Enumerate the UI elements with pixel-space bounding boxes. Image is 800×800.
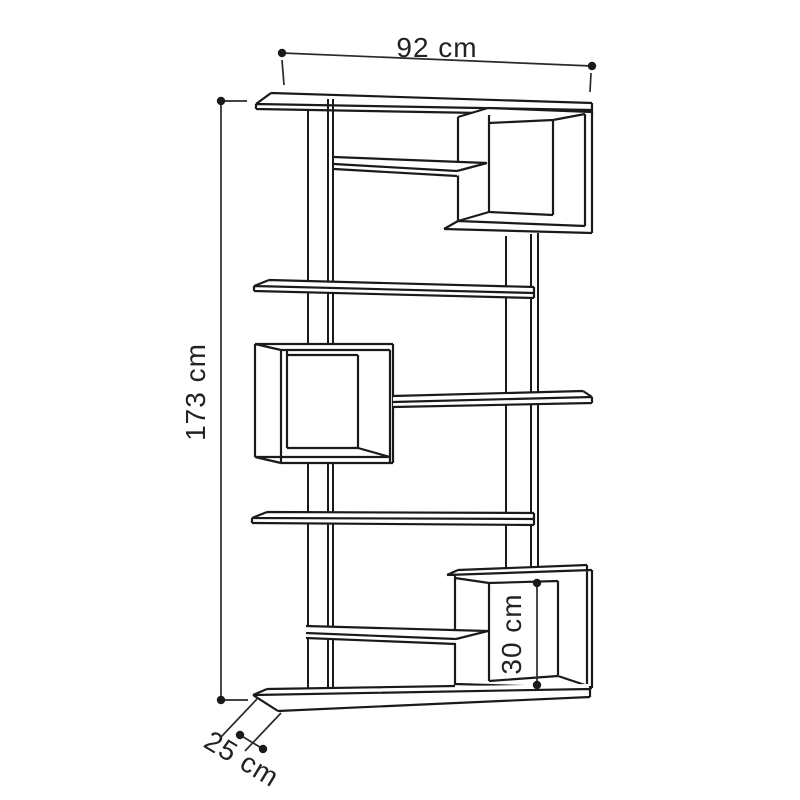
height-dot-bottom — [217, 696, 225, 704]
diagram-canvas: 92 cm 173 cm 25 cm 30 cm — [0, 0, 800, 800]
cube-dot-top — [533, 579, 541, 587]
height-tick-lines — [221, 101, 248, 700]
width-dot-right — [588, 62, 596, 70]
height-dimension-label: 173 cm — [180, 343, 211, 441]
bookshelf-diagram: 92 cm 173 cm 25 cm 30 cm — [0, 0, 800, 800]
dimension-height: 173 cm — [180, 97, 248, 704]
cube-dimension-label: 30 cm — [496, 593, 527, 674]
middle-left-cube-face — [255, 344, 393, 463]
shelf-row-2 — [254, 280, 534, 298]
width-dot-left — [278, 49, 286, 57]
shelf-row-4 — [252, 512, 534, 525]
width-dimension-label: 92 cm — [396, 32, 477, 63]
cube-dot-bottom — [533, 681, 541, 689]
height-dot-top — [217, 97, 225, 105]
dimension-depth: 25 cm — [199, 699, 285, 793]
shelf-row-3 — [393, 391, 592, 407]
middle-left-cube — [255, 344, 393, 463]
dimension-width: 92 cm — [278, 32, 596, 92]
